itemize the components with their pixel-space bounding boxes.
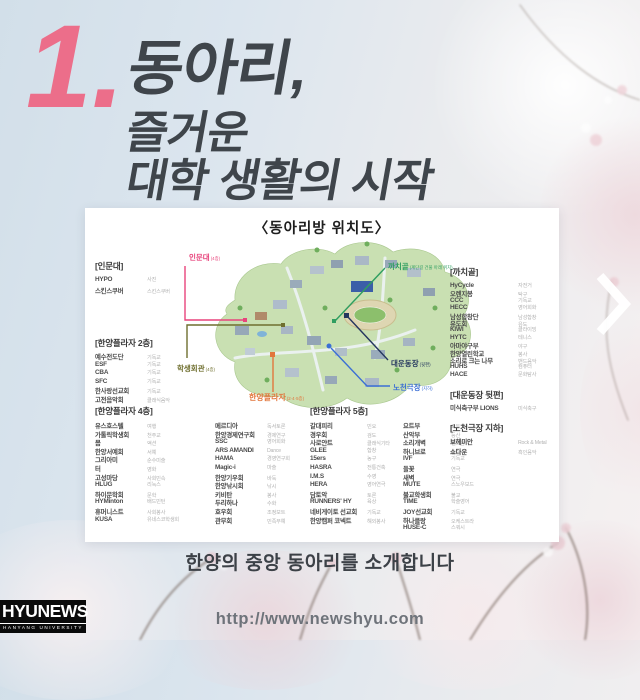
club-name: 미식축구부 LIONS	[450, 403, 518, 412]
club-name: GLEE	[310, 447, 367, 454]
hyunews-logo: HYUNEWS HANYANG UNIVERSITY	[0, 600, 86, 633]
club-row: HAMA경영연구회	[215, 455, 290, 464]
section-header-nocheon: [노천극장 지하]	[450, 422, 503, 434]
club-name: ESF	[95, 361, 147, 368]
club-name: SFC	[95, 378, 147, 385]
club-category: 리눅스	[147, 481, 161, 488]
club-category: 민족무예	[267, 518, 285, 525]
club-name: HLUG	[95, 481, 147, 488]
club-row: MUTE스노우보드	[403, 481, 474, 490]
club-name: HERA	[310, 481, 367, 488]
next-slide-chevron-icon[interactable]	[594, 268, 636, 340]
club-row: 유도회유도	[450, 319, 536, 326]
club-name: MUTE	[403, 481, 451, 488]
club-row: 불교학생회불교	[403, 490, 474, 499]
club-row: 쇼다운흑인음악	[450, 447, 546, 457]
club-category: 전통건축	[367, 464, 385, 471]
club-name: TIME	[403, 498, 451, 505]
club-row: HYMinton배드민턴	[95, 498, 179, 507]
club-category: 기독교	[147, 361, 161, 368]
club-category: 영어연극	[367, 481, 385, 488]
club-row: HACE문화탐사	[450, 371, 536, 378]
club-category: 스쿼시	[451, 524, 465, 531]
club-list-plaza2: 예수전도단기독교ESF기독교CBA기독교SFC기독교한사랑선교회기독교고전음악회…	[95, 352, 170, 404]
club-row: 네비게이토 선교회기독교	[310, 507, 390, 516]
club-category: 스노우보드	[451, 481, 474, 488]
club-name: KUSA	[95, 516, 147, 523]
club-name: 스킨스쿠버	[95, 286, 147, 295]
club-row: 한양열린학교봉사	[450, 349, 536, 356]
club-row: 들꽃연극	[403, 464, 474, 473]
map-label-stadium: 대운동장(뒷편)	[391, 358, 431, 369]
club-category: 경영연구회	[267, 455, 290, 462]
club-row: 15ers농구	[310, 455, 390, 464]
club-row: 휴머니스트사회봉사	[95, 507, 179, 516]
club-list-stadium: 미식축구부 LIONS미식축구	[450, 403, 536, 412]
club-row: HERA영어연극	[310, 481, 390, 490]
club-row: 고성마당사회민속	[95, 473, 179, 482]
club-category: 육상	[367, 498, 376, 505]
club-name: HYTC	[450, 334, 518, 341]
club-name: ARS AMANDI	[215, 447, 267, 454]
club-row: KIWI클라이밍	[450, 326, 536, 333]
club-category: 자전거	[518, 282, 532, 289]
club-category: 배드민턴	[147, 498, 165, 505]
club-row: 소리로 크는 나무밴드음악	[450, 356, 536, 363]
club-row: 하나클랑오케스트라	[403, 516, 474, 525]
club-row: HYPO사진	[95, 276, 170, 286]
club-row: 두리하나수화	[215, 498, 290, 507]
club-row: 유스호스텔여행	[95, 421, 179, 430]
club-category: 문화탐사	[518, 371, 536, 378]
club-category: 수영	[367, 473, 376, 480]
club-category: 기독교	[147, 378, 161, 385]
club-list-plaza5-col1: 갈대피리민요경우회검도사로얀트클래식기타GLEE합창15ers농구HASRA전통…	[310, 421, 390, 524]
club-name: 관무회	[215, 516, 267, 525]
map-label-hanyang-plaza: 한양플라자(2·4·5층)	[249, 392, 304, 403]
club-row: 그리아미순수미술	[95, 455, 179, 464]
club-row: I.M.S수영	[310, 473, 390, 482]
club-row: HyCycle자전거	[450, 282, 536, 289]
club-name: Magic-i	[215, 464, 267, 471]
club-category: 마술	[267, 464, 276, 471]
club-category: 스킨스쿠버	[147, 288, 170, 295]
club-row: GLEE합창	[310, 447, 390, 456]
club-row: Magic-i마술	[215, 464, 290, 473]
club-category: 컴퓨터	[518, 363, 532, 370]
club-name: HUSE-C	[403, 524, 451, 531]
club-list-nocheon: 보헤미안Rock & Metal쇼다운흑인음악	[450, 437, 546, 456]
club-list-plaza4-col1: 유스호스텔여행가톨릭학생회천주교몸액션한양서예회서예그리아미순수미술터영화고성마…	[95, 421, 179, 524]
club-row: 한양캠퍼 코넥트해외봉사	[310, 516, 390, 525]
club-name: I.M.S	[310, 473, 367, 480]
club-list-plaza4-col2: 메르디아독서토론한양경제연구회경제연구SSC영어회화ARS AMANDIDanc…	[215, 421, 290, 524]
title-line-3: 대학 생활의 시작	[122, 144, 439, 209]
club-name: 보헤미안	[450, 437, 518, 446]
club-row: 하이문학회문학	[95, 490, 179, 499]
club-row: SFC기독교	[95, 378, 170, 387]
club-row: 새벽연극	[403, 473, 474, 482]
club-name: CCC	[450, 297, 518, 304]
club-category: Rock & Metal	[518, 440, 546, 446]
club-row: 미식축구부 LIONS미식축구	[450, 403, 536, 412]
club-row: CCC기독교	[450, 297, 536, 304]
club-row: 경우회검도	[310, 430, 390, 439]
blossom-cluster	[430, 0, 640, 220]
slide-number: 1.	[26, 8, 124, 126]
club-row: 갈대피리민요	[310, 421, 390, 430]
map-label-inmundae: 인문대(4층)	[189, 252, 220, 263]
club-row: 한양서예회서예	[95, 447, 179, 456]
club-row: 고전음악회클래식음악	[95, 395, 170, 404]
section-header-plaza4: [한양플라자 4층]	[95, 405, 153, 417]
club-row: 예수전도단기독교	[95, 352, 170, 361]
website-url: http://www.newshyu.com	[0, 610, 640, 629]
club-name: HAMA	[215, 455, 267, 462]
club-row: 키비탄봉사	[215, 490, 290, 499]
club-row: 오렌지봉탁구	[450, 289, 536, 296]
club-row: HLUG리눅스	[95, 481, 179, 490]
club-row: HECC영어회화	[450, 304, 536, 311]
club-category: 유네스코학생회	[147, 516, 179, 523]
club-row: 남성합창단남성합창	[450, 312, 536, 319]
club-category: 기독교	[451, 455, 465, 462]
club-row: 메르디아독서토론	[215, 421, 290, 430]
club-name: KIWI	[450, 326, 518, 333]
club-name: SSC	[215, 438, 267, 445]
club-name: HYMinton	[95, 498, 147, 505]
club-row: TIME학술영어	[403, 498, 474, 507]
club-row: 한사랑선교회기독교	[95, 386, 170, 395]
club-category: 클래식음악	[147, 397, 170, 404]
club-row: 한양기우회바둑	[215, 473, 290, 482]
club-row: 보헤미안Rock & Metal	[450, 437, 546, 447]
club-name: RUNNERS' HY	[310, 498, 367, 505]
club-row: 관무회민족무예	[215, 516, 290, 525]
club-row: ARS AMANDIDance	[215, 447, 290, 456]
section-header-stadium: [대운동장 뒷편]	[450, 389, 503, 401]
blossom-cluster	[510, 520, 640, 680]
club-row: JOY선교회기독교	[403, 507, 474, 516]
hyunews-logo-text: HYUNEWS	[0, 600, 86, 623]
club-row: SSC영어회화	[215, 438, 290, 447]
club-category: Dance	[267, 448, 281, 454]
club-category: 미식축구	[518, 405, 536, 412]
club-category: 사진	[147, 276, 156, 283]
section-header-kkachigol: [까치골]	[450, 266, 478, 278]
club-list-inmundae: HYPO사진스킨스쿠버스킨스쿠버	[95, 276, 170, 295]
club-row: 가톨릭학생회천주교	[95, 430, 179, 439]
club-name: IVF	[403, 455, 451, 462]
club-name: HASRA	[310, 464, 367, 471]
club-row: 담토악토론	[310, 490, 390, 499]
club-row: ESF기독교	[95, 361, 170, 370]
club-row: HYTC테니스	[450, 334, 536, 341]
hyunews-logo-subtext: HANYANG UNIVERSITY	[0, 623, 86, 634]
club-category: 영어회화	[267, 438, 285, 445]
club-location-card: 〈동아리방 위치도〉	[85, 208, 559, 542]
club-name: 15ers	[310, 455, 367, 462]
club-row: 스킨스쿠버스킨스쿠버	[95, 286, 170, 296]
club-category: 클라이밍	[518, 326, 536, 333]
club-category: 기독교	[518, 297, 532, 304]
club-name: HYPO	[95, 276, 147, 283]
club-name: CBA	[95, 369, 147, 376]
title-line-1: 동아리,	[122, 20, 316, 107]
caption-text: 한양의 중앙 동아리를 소개합니다	[0, 548, 640, 575]
club-row: 사로얀트클래식기타	[310, 438, 390, 447]
club-row: 호우회조정보트	[215, 507, 290, 516]
club-category: 합창	[367, 447, 376, 454]
club-name: 쇼다운	[450, 447, 518, 456]
club-row: HUSE-C스쿼시	[403, 524, 474, 533]
club-row: 터영화	[95, 464, 179, 473]
club-row: 한양경제연구회경제연구	[215, 430, 290, 439]
club-row: KUSA유네스코학생회	[95, 516, 179, 525]
club-row: CBA기독교	[95, 369, 170, 378]
club-category: 학술영어	[451, 498, 469, 505]
club-category: 기독교	[147, 369, 161, 376]
club-name: HACE	[450, 371, 518, 378]
club-name: HyCycle	[450, 282, 518, 289]
club-row: HASRA전통건축	[310, 464, 390, 473]
section-header-inmundae: [인문대]	[95, 260, 123, 272]
map-label-amphitheater: 노천극장(지하)	[393, 382, 433, 393]
club-list-kkachigol: HyCycle자전거오렌지봉탁구CCC기독교HECC영어회화남성합창단남성합창유…	[450, 282, 536, 378]
club-category: 흑인음악	[518, 449, 536, 456]
club-name: HUHS	[450, 363, 518, 370]
map-label-student-hall: 학생회관(4층)	[177, 363, 215, 374]
club-name: 한양캠퍼 코넥트	[310, 516, 367, 525]
club-row: 아마야구부야구	[450, 341, 536, 348]
club-category: 농구	[367, 455, 376, 462]
section-header-plaza2: [한양플라자 2층]	[95, 337, 153, 349]
club-row: IVF기독교	[403, 455, 474, 464]
club-name: 고전음악회	[95, 395, 147, 404]
club-row: HUHS컴퓨터	[450, 363, 536, 370]
club-category: 영어회화	[518, 304, 536, 311]
club-name: HECC	[450, 304, 518, 311]
section-header-plaza5: [한양플라자 5층]	[310, 405, 368, 417]
club-row: 몸액션	[95, 438, 179, 447]
club-category: 해외봉사	[367, 518, 385, 525]
map-label-kkachigol: 까치골(계단길 건물 아래 위치)	[388, 261, 453, 272]
club-row: RUNNERS' HY육상	[310, 498, 390, 507]
club-category: 테니스	[518, 334, 532, 341]
club-row: 한양낚시회낚시	[215, 481, 290, 490]
